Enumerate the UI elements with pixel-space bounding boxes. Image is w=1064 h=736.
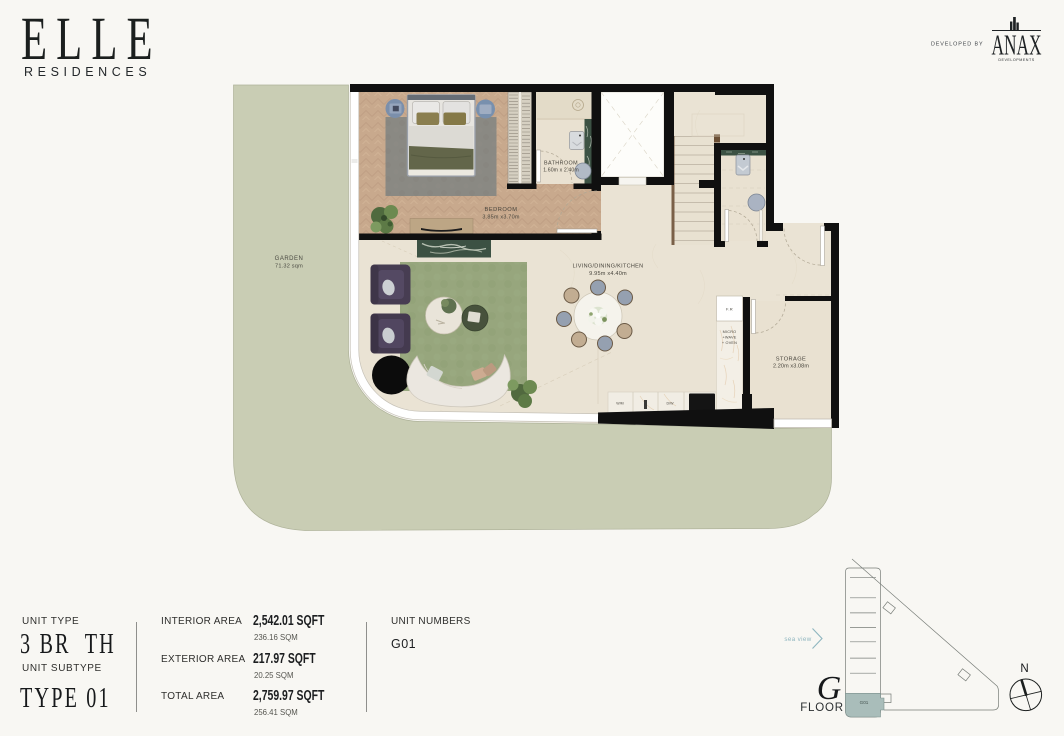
svg-text:N: N <box>1020 663 1028 675</box>
svg-text:G01: G01 <box>860 700 869 705</box>
svg-text:sea view: sea view <box>784 636 811 643</box>
svg-text:FLOOR: FLOOR <box>800 702 844 714</box>
